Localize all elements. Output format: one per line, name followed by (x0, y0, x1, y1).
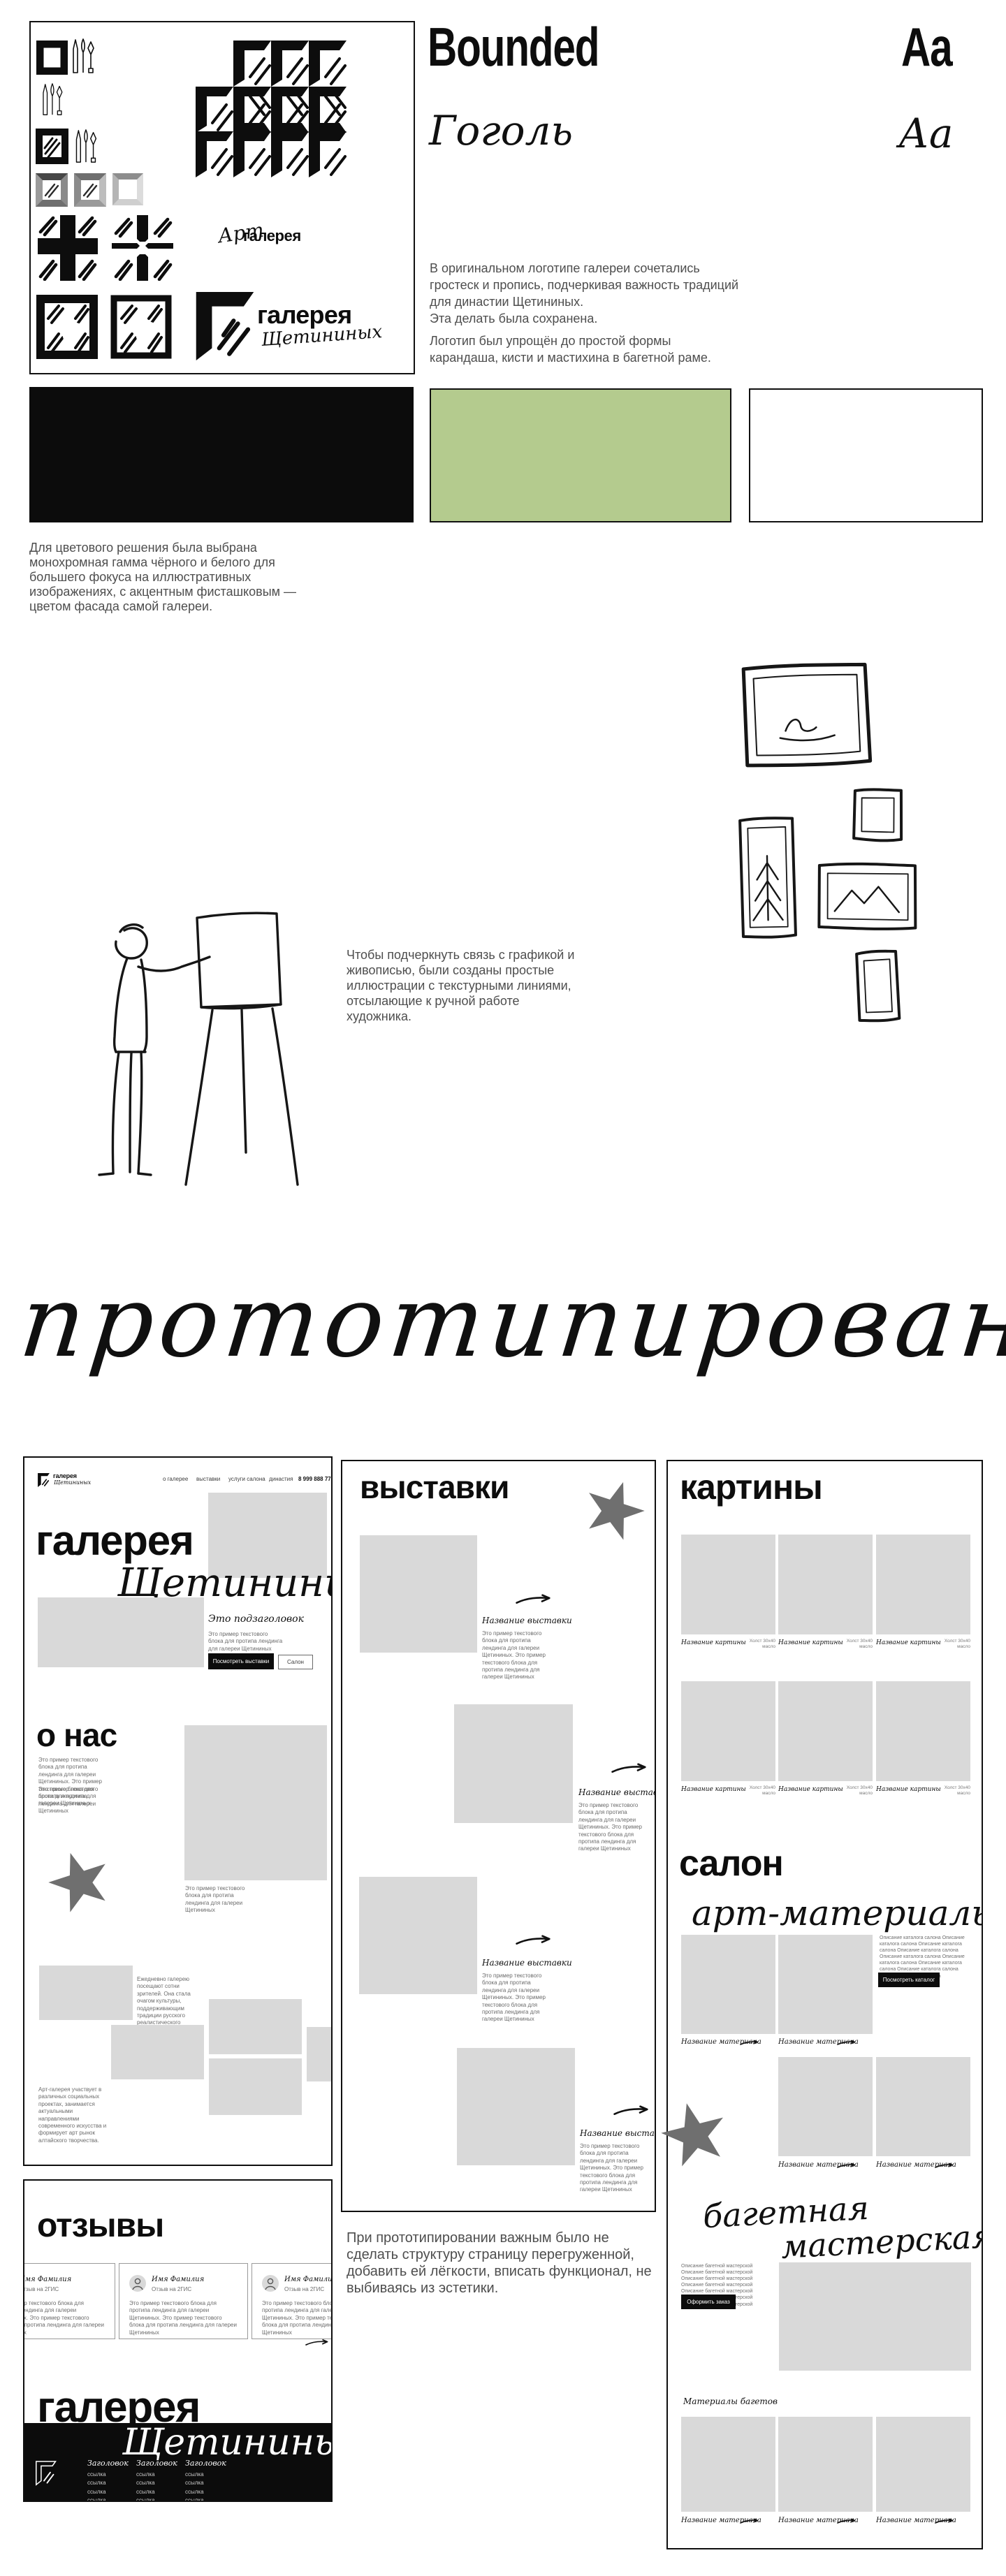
about-paragraph-2: Это пример текстового блока для протипа … (38, 1786, 107, 1815)
material-image (681, 1935, 775, 2034)
art-gallery-bold: галерея (243, 229, 301, 244)
font-name-secondary: Гоголь (429, 110, 573, 151)
section-title-script: прототипирование (16, 1273, 1006, 1372)
footer-black-block: Щетининых Заголовок ссылка ссылка ссылка… (24, 2423, 331, 2501)
nav-item-dynasty[interactable]: династия (269, 1476, 293, 1482)
baget-script-line2: мастерская (780, 2220, 983, 2263)
salon-script: арт-материалы (692, 1896, 983, 1931)
reviews-title: отзывы (37, 2210, 163, 2242)
prototype-reviews-panel: отзывы Имя Фамилия Отзыв на 2ГИС Это при… (23, 2179, 333, 2502)
footer-link[interactable]: ссылка (87, 2489, 129, 2496)
arrow-icon (516, 1594, 552, 1605)
review-card[interactable]: Имя Фамилия Отзыв на 2ГИС Это пример тек… (119, 2263, 248, 2339)
arrow-icon (741, 2040, 759, 2046)
hatch-strokes (43, 182, 60, 198)
material-image (778, 1935, 873, 2034)
painting-meta: Холст 30х40масло (838, 1639, 873, 1651)
review-card[interactable]: Имя Фамилия Отзыв на 2ГИС Это пример тек… (251, 2263, 333, 2339)
footer-column: Заголовок ссылка ссылка ссылка ссылка (185, 2459, 226, 2502)
frame-icon (36, 41, 68, 75)
collage-image (111, 2025, 204, 2079)
review-body: Это пример текстового блока для протипа … (129, 2300, 238, 2336)
paintings-title: картины (680, 1471, 822, 1505)
review-source: Отзыв на 2ГИС (152, 2286, 191, 2293)
painting-name: Название картины (876, 1640, 941, 1646)
arrow-icon (935, 2162, 954, 2169)
about-title: о нас (36, 1720, 117, 1751)
art-tools-icon (70, 38, 95, 75)
painting-image (876, 1681, 970, 1781)
cross-logo-split (112, 215, 173, 281)
avatar (129, 2275, 146, 2292)
exhibition-name: Название выставки (578, 1788, 656, 1796)
hero-image-placeholder (38, 1597, 204, 1667)
exhibition-image (457, 2048, 575, 2165)
review-name: Имя Фамилия (23, 2276, 71, 2283)
font-specimen-primary: Aa (901, 21, 969, 73)
review-card[interactable]: Имя Фамилия Отзыв на 2ГИС Это пример тек… (23, 2263, 115, 2339)
footer-title-script: Щетининых (122, 2424, 333, 2461)
hero-title: галерея (36, 1521, 194, 1560)
mock-logo-script: Щетининых (54, 1480, 91, 1486)
painting-image (778, 1681, 873, 1781)
square-star-logo-light (110, 295, 172, 359)
logo-paragraph-2: Логотип был упрощён до простой формы кар… (430, 332, 741, 366)
mock-logo-bold: галерея (53, 1473, 77, 1479)
painting-name: Название картины (778, 1640, 843, 1646)
footer-column-title: Заголовок (136, 2459, 177, 2467)
arrow-icon (838, 2040, 856, 2046)
prototype-catalog-panel: картины Название картины Холст 30х40масл… (666, 1460, 983, 2549)
logo-paragraph-1: В оригинальном логотипе галереи сочетали… (430, 260, 741, 327)
arrow-icon (838, 2162, 856, 2169)
painting-meta: Холст 30х40масло (741, 1639, 775, 1651)
sketched-frames-illustration (720, 655, 985, 1036)
logo-sketch-board: Арт галерея (29, 21, 415, 374)
painting-meta: Холст 30х40масло (935, 1639, 970, 1651)
exhibition-body: Это пример текстового блока для протипа … (580, 2143, 650, 2194)
painting-name: Название картины (778, 1787, 843, 1793)
exhibitions-title: выставки (360, 1472, 509, 1503)
exhibition-name: Название выставки (482, 1616, 572, 1625)
cross-logo-solid (38, 215, 98, 281)
hero-body-text: Это пример текстового блока для протипа … (208, 1631, 284, 1653)
hero-secondary-button[interactable]: Салон (278, 1655, 313, 1669)
exhibition-name: Название выставки (580, 2129, 656, 2137)
footer-column: Заголовок ссылка ссылка ссылка ссылка (136, 2459, 177, 2502)
exhibition-image (360, 1535, 477, 1653)
arrow-icon (741, 2518, 759, 2524)
avatar (262, 2275, 279, 2292)
footer-link[interactable]: ссылка (87, 2471, 129, 2478)
baget-materials-label: Материалы багетов (683, 2397, 778, 2406)
painting-name: Название картины (876, 1787, 941, 1793)
art-tools-outline-icon (39, 82, 64, 117)
gallery-logo-mark-white (36, 2461, 57, 2486)
arrow-icon[interactable] (305, 2339, 329, 2347)
exhibition-body: Это пример текстового блока для протипа … (482, 1630, 553, 1681)
footer-column: Заголовок ссылка ссылка ссылка ссылка (87, 2459, 129, 2502)
square-star-logo (36, 295, 98, 359)
exhibition-name: Название выставки (482, 1959, 572, 1967)
footer-link[interactable]: ссылка (136, 2489, 177, 2496)
footer-link[interactable]: ссылка (87, 2497, 129, 2502)
prototype-landing-panel: галерея Щетининых о галерее выставки усл… (23, 1456, 333, 2166)
hatch-strokes (82, 182, 99, 198)
painting-image (778, 1535, 873, 1634)
review-name: Имя Фамилия (284, 2276, 333, 2283)
collage-image (209, 1999, 302, 2054)
painting-image (681, 1681, 775, 1781)
case-study-page: Арт галерея (0, 0, 1006, 2576)
footer-link[interactable]: ссылка (136, 2471, 177, 2478)
swatch-white (749, 388, 983, 522)
collage-text-2: Арт-галерея участвует в различных социал… (38, 2086, 108, 2144)
prototype-note: При прототипировании важным было не сдел… (347, 2230, 654, 2297)
baget-material-image (681, 2417, 775, 2512)
painting-meta: Холст 30х40масло (838, 1785, 873, 1797)
hero-subtitle-script: Это подзаголовок (208, 1614, 304, 1624)
collage-image (209, 2058, 302, 2115)
arrow-icon (838, 2518, 856, 2524)
painting-meta: Холст 30х40масло (935, 1785, 970, 1797)
font-specimen-secondary: Аа (898, 113, 954, 154)
review-source: Отзыв на 2ГИС (284, 2286, 324, 2293)
material-image (778, 2057, 873, 2156)
phone-number[interactable]: 8 999 888 77 66 (298, 1476, 333, 1482)
painting-image (876, 1535, 970, 1634)
review-name: Имя Фамилия (152, 2276, 204, 2283)
frame-corner-pattern (196, 41, 347, 177)
painting-meta: Холст 30х40масло (741, 1785, 775, 1797)
art-tools-icon (73, 129, 98, 165)
footer-link[interactable]: ссылка (185, 2497, 226, 2502)
bevel-frame-light (112, 173, 143, 205)
arrow-icon (516, 1935, 552, 1946)
painting-name: Название картины (681, 1640, 746, 1646)
swatch-pistachio (430, 388, 731, 522)
painting-name: Название картины (681, 1787, 746, 1793)
frame-hatch-icon (36, 127, 68, 166)
artist-easel-illustration (42, 900, 335, 1200)
footer-link[interactable]: ссылка (185, 2480, 226, 2487)
material-image (876, 2057, 970, 2156)
hero-primary-button[interactable]: Посмотреть выставки (208, 1653, 274, 1669)
painting-image (681, 1535, 775, 1634)
salon-title: салон (679, 1847, 783, 1881)
baget-material-image (876, 2417, 970, 2512)
review-source: Отзыв на 2ГИС (23, 2286, 59, 2293)
nav-item-about[interactable]: о галерее (163, 1476, 188, 1482)
review-body: Это пример текстового блока для протипа … (262, 2300, 333, 2336)
illustration-paragraph: Чтобы подчеркнуть связь с графикой и жив… (347, 947, 577, 1024)
exhibition-body: Это пример текстового блока для протипа … (578, 1802, 650, 1853)
gallery-logo-mark (38, 1473, 50, 1487)
exhibition-body: Это пример текстового блока для протипа … (482, 1973, 553, 2024)
footer-link[interactable]: ссылка (136, 2497, 177, 2502)
collage-image (307, 2027, 331, 2081)
about-image-caption: Это пример текстового блока для протипа … (185, 1885, 255, 1915)
gallery-logo-mark (196, 292, 254, 360)
swatch-black (29, 387, 414, 522)
exhibition-image (359, 1877, 477, 1994)
about-image-placeholder (184, 1725, 327, 1880)
gallery-logo-bold: галерея (257, 303, 351, 327)
footer-column-title: Заголовок (185, 2459, 226, 2467)
collage-image (39, 1966, 133, 2020)
arrow-icon (935, 2518, 954, 2524)
baget-image (779, 2262, 971, 2371)
footer-column-title: Заголовок (87, 2459, 129, 2467)
footer-link[interactable]: ссылка (185, 2471, 226, 2478)
footer-link[interactable]: ссылка (136, 2480, 177, 2487)
arrow-icon (611, 1763, 648, 1774)
baget-order-button[interactable]: Оформить заказ (681, 2295, 736, 2309)
salon-catalog-button[interactable]: Посмотреть каталог (878, 1973, 940, 1987)
nav-item-services[interactable]: услуги салона (228, 1476, 265, 1482)
footer-link[interactable]: ссылка (87, 2480, 129, 2487)
star-shape (576, 1472, 653, 1549)
footer-link[interactable]: ссылка (185, 2489, 226, 2496)
color-paragraph: Для цветового решения была выбрана монох… (29, 541, 330, 614)
review-body: Это пример текстового блока для протипа … (23, 2300, 105, 2336)
prototype-exhibitions-panel: выставки Название выставки Это пример те… (341, 1460, 656, 2212)
exhibition-image (454, 1704, 573, 1823)
nav-item-exhibitions[interactable]: выставки (196, 1476, 220, 1482)
arrow-icon (613, 2105, 650, 2116)
baget-material-image (778, 2417, 873, 2512)
font-name-primary: Bounded (428, 21, 656, 73)
star-shape (40, 1842, 119, 1921)
